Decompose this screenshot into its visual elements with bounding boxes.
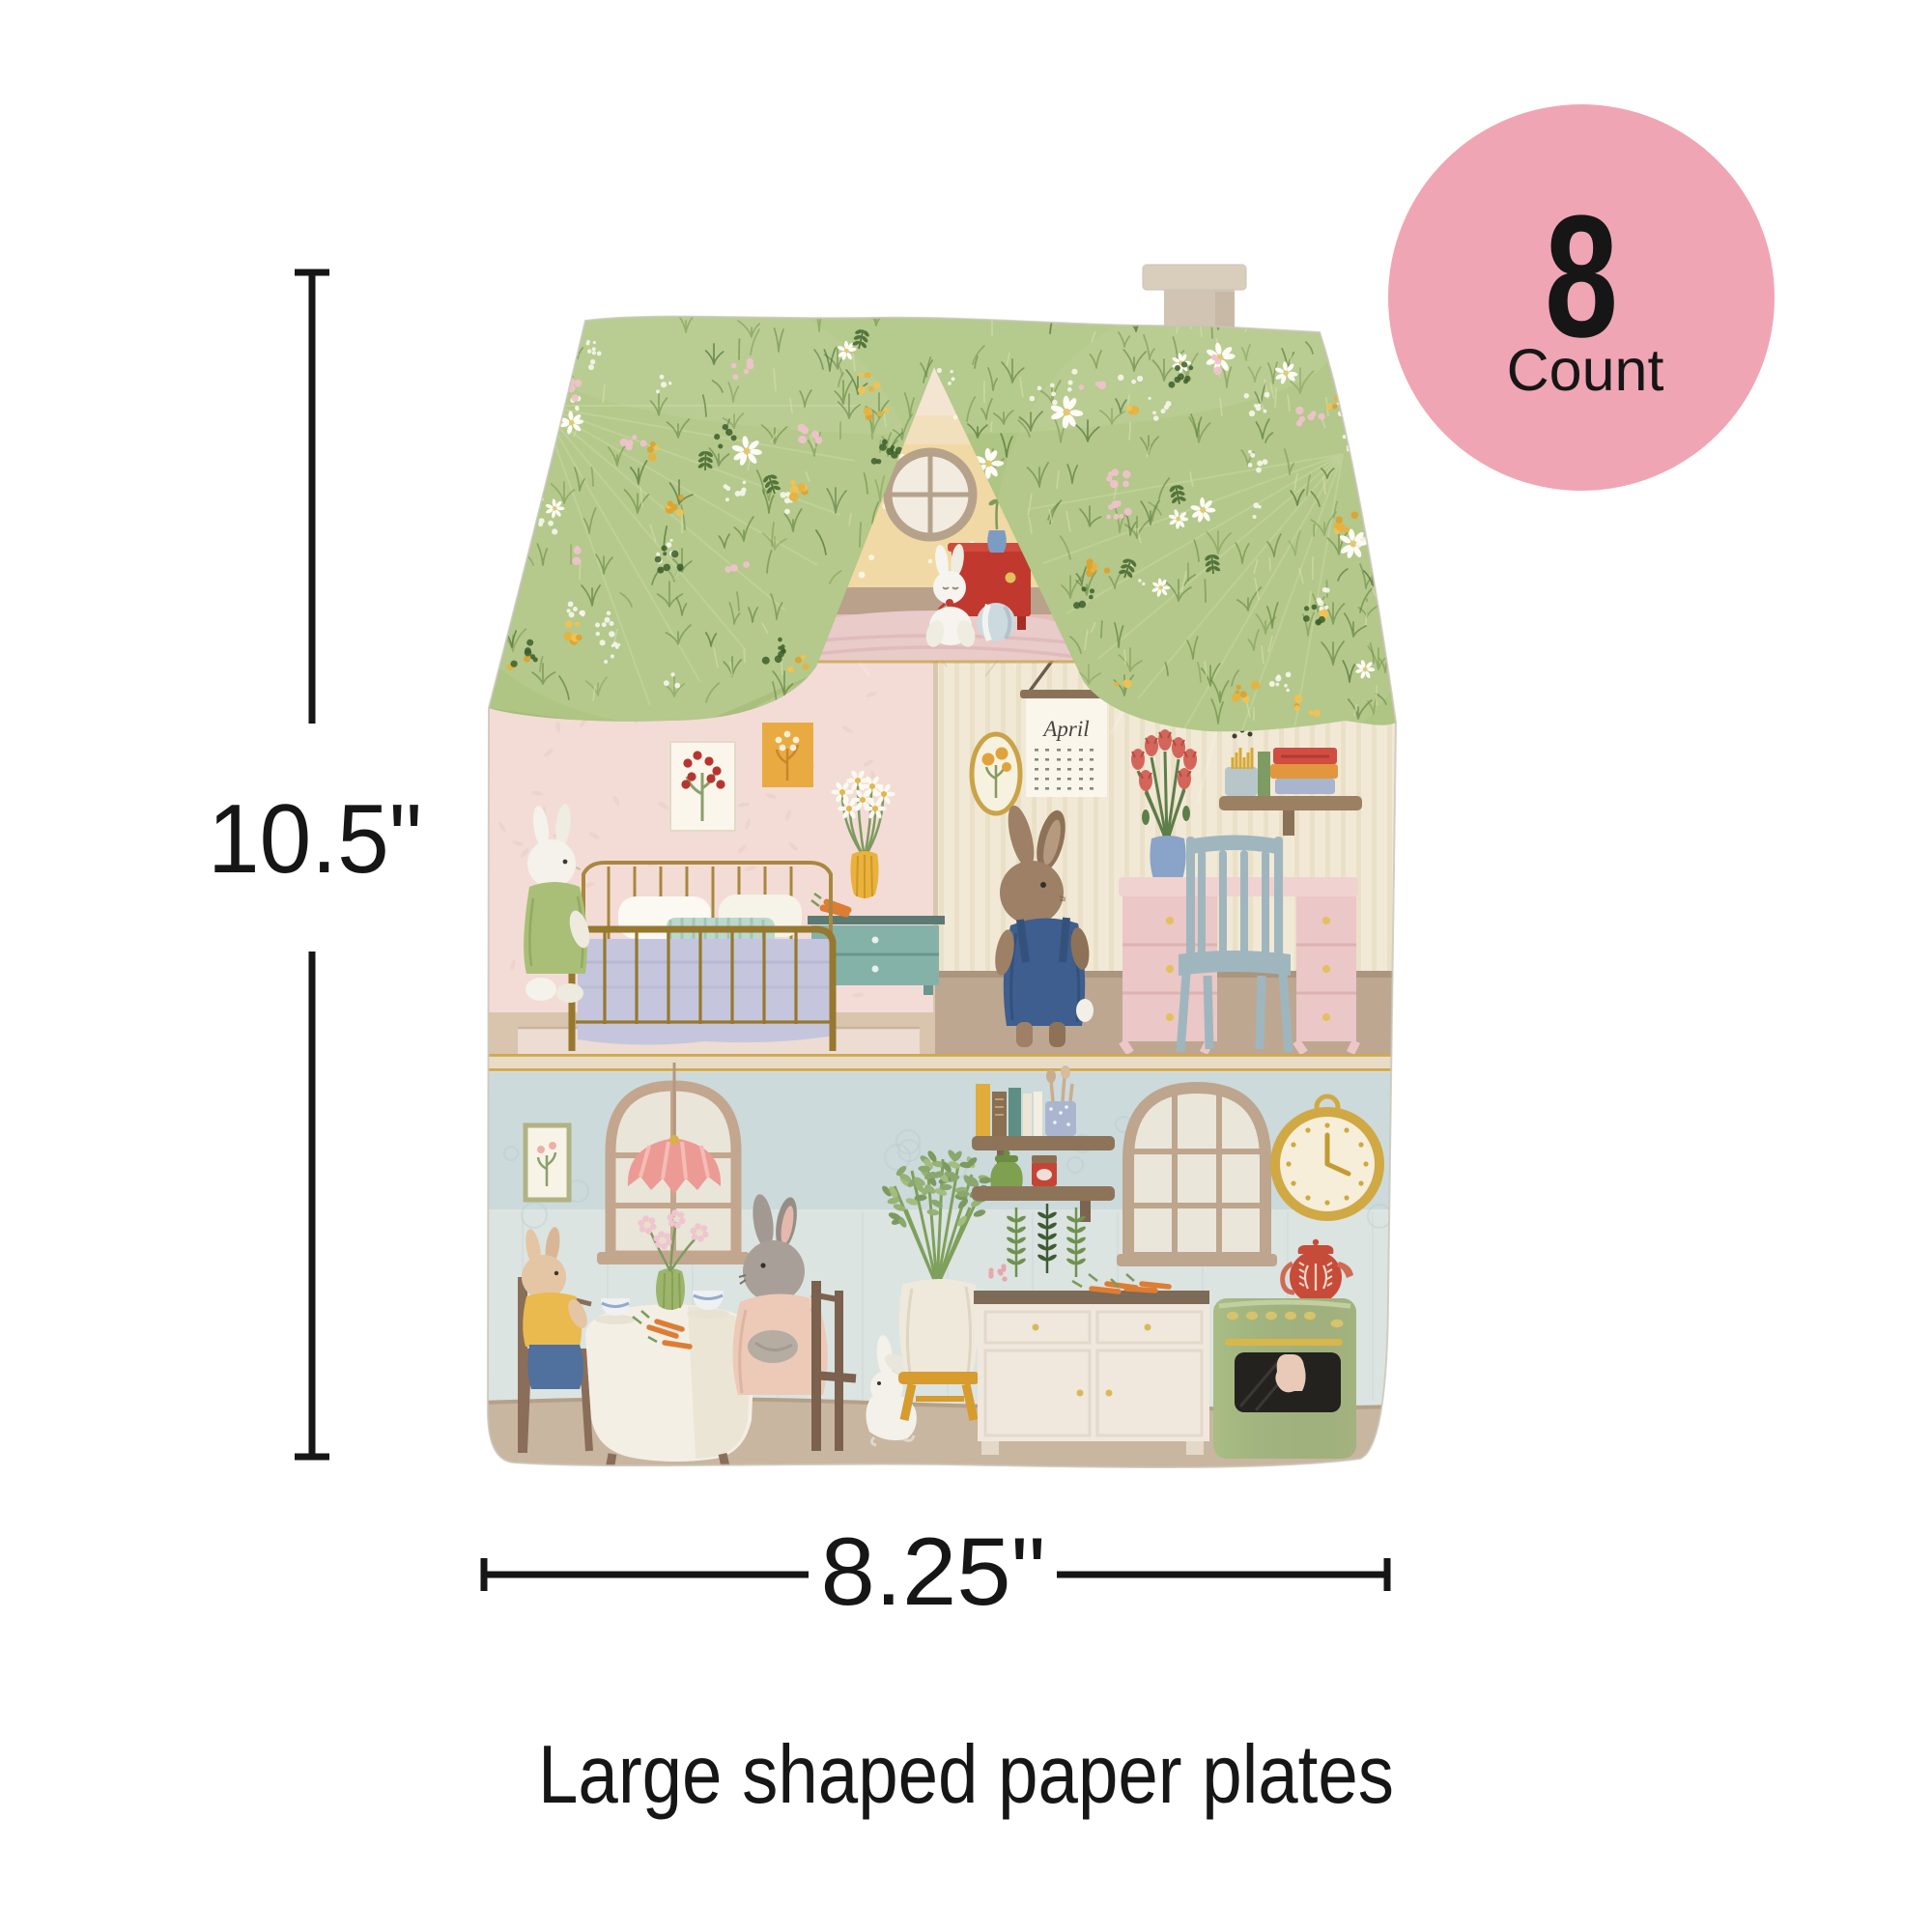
svg-text:8.25": 8.25" [821, 1518, 1046, 1625]
svg-text:Count: Count [1507, 337, 1664, 403]
svg-text:Large shaped paper plates: Large shaped paper plates [538, 1729, 1394, 1821]
svg-text:April: April [1041, 717, 1089, 741]
svg-text:10.5": 10.5" [208, 785, 422, 894]
